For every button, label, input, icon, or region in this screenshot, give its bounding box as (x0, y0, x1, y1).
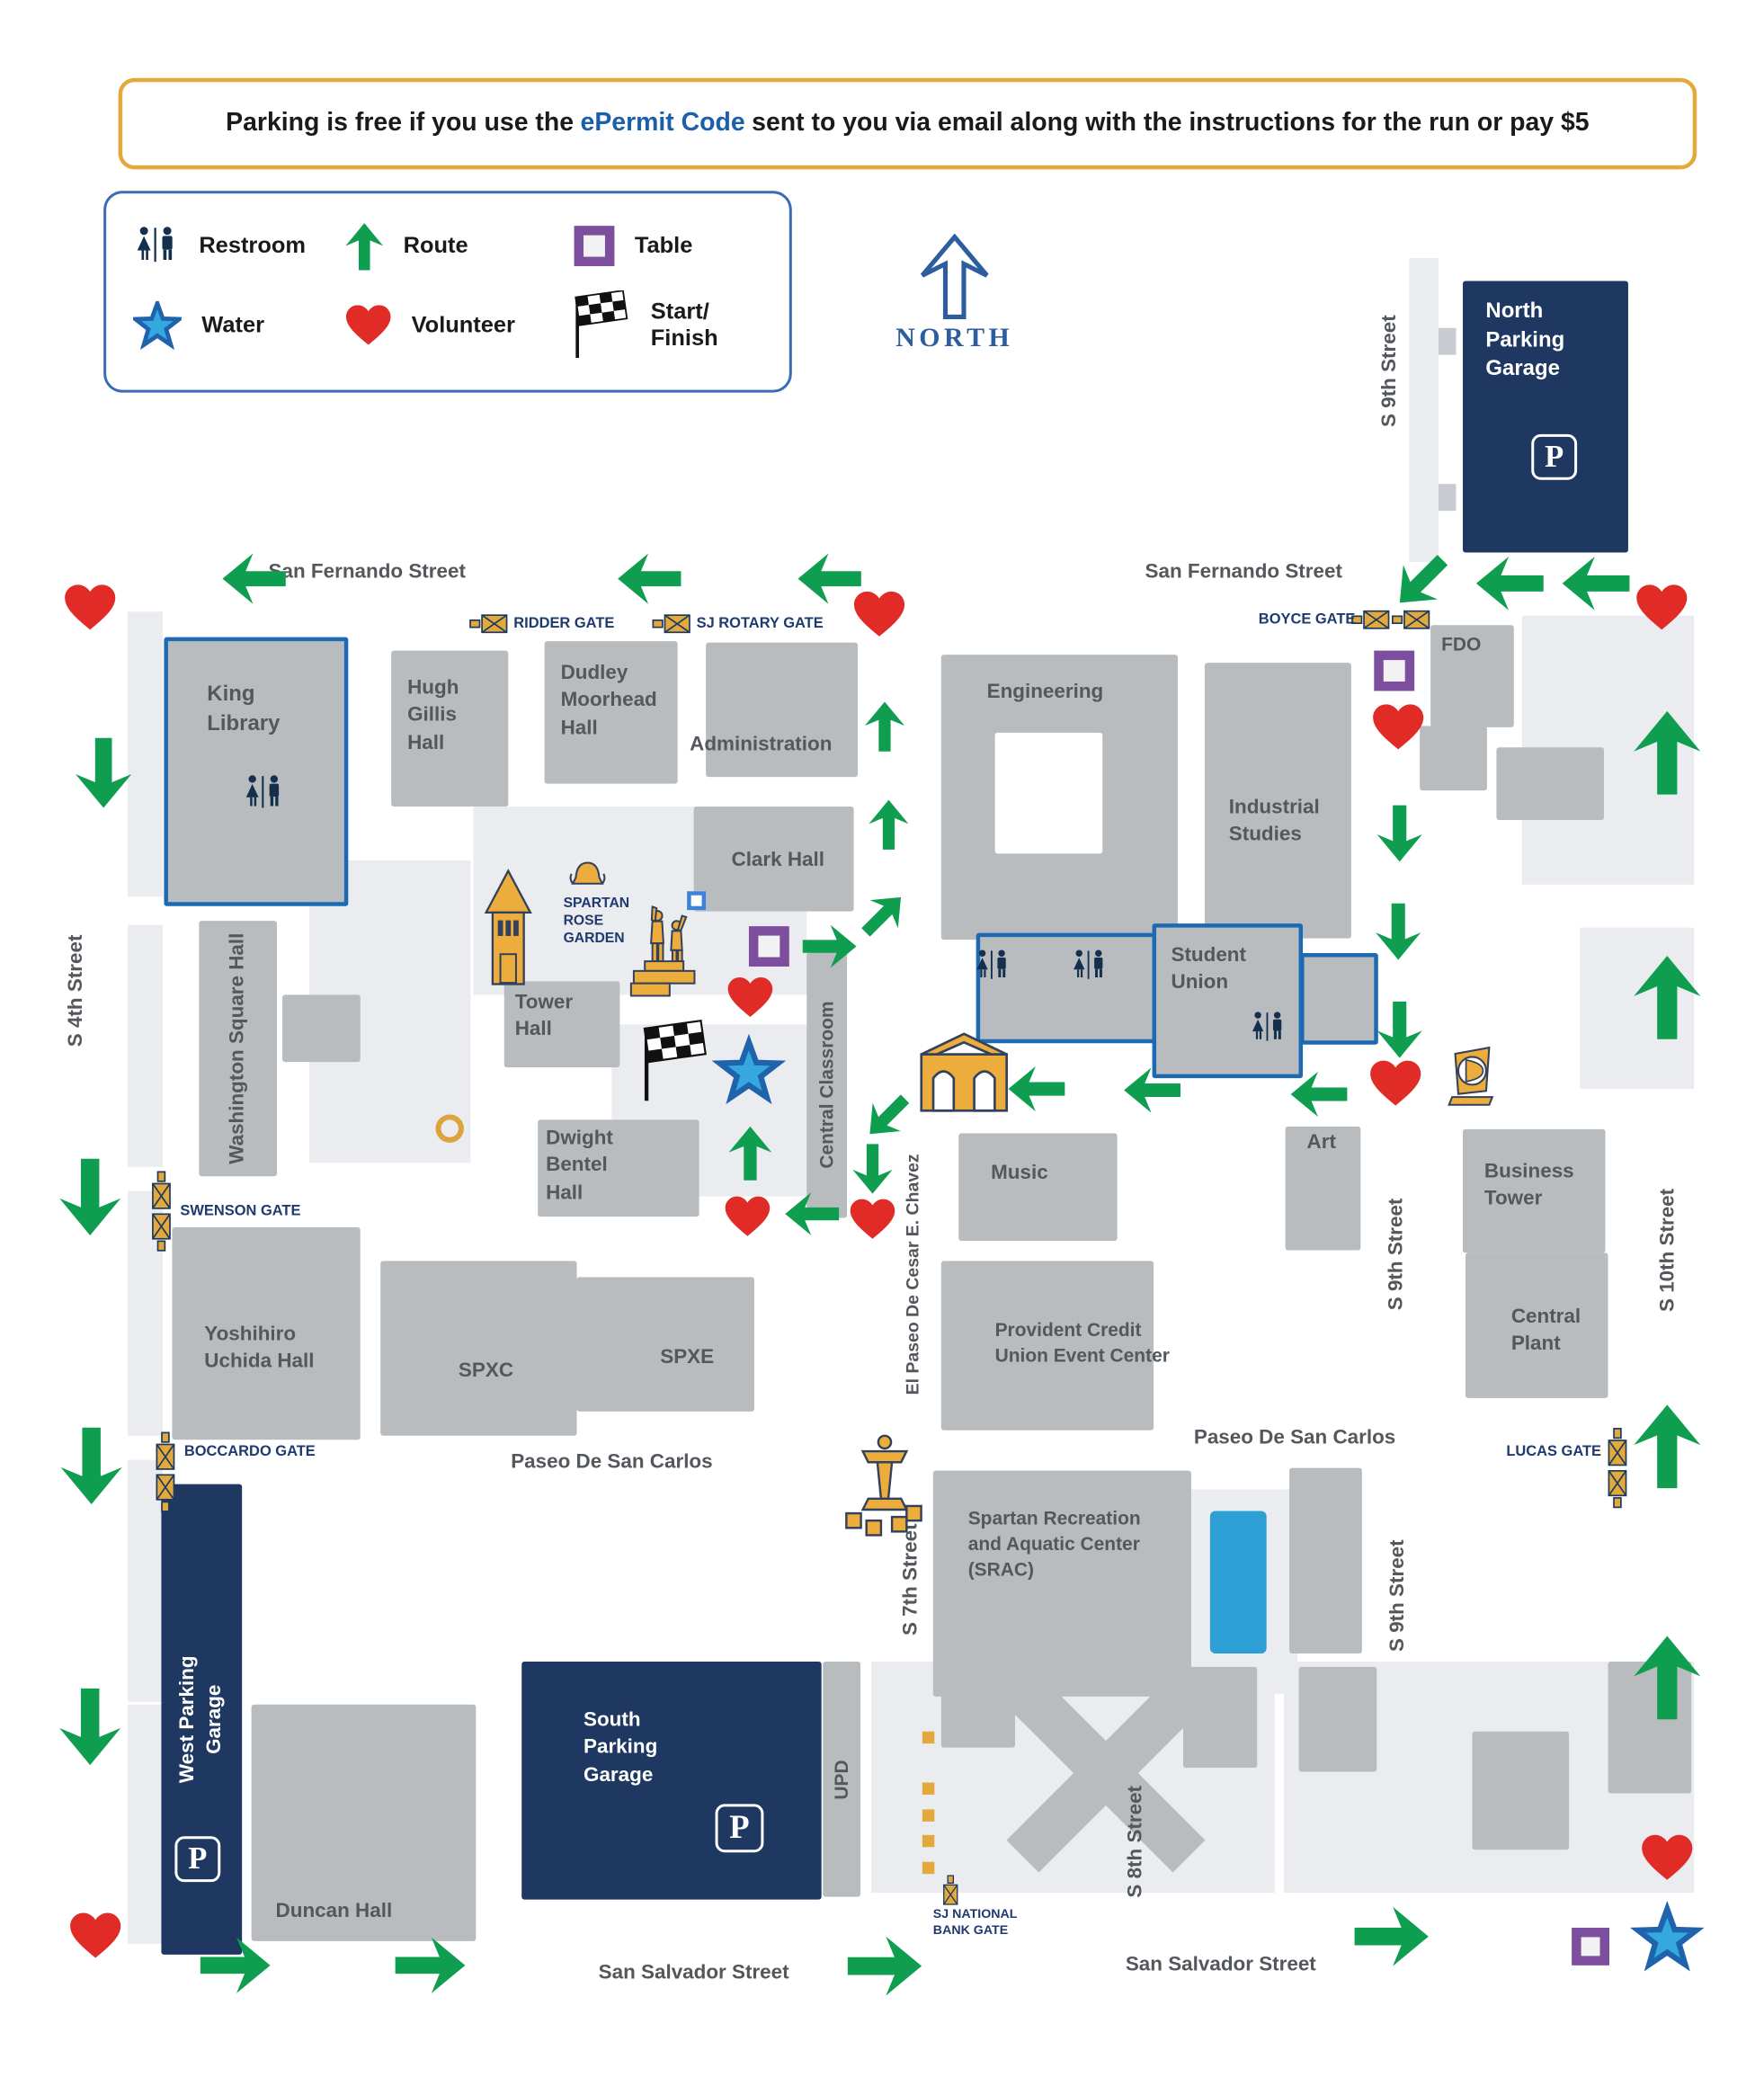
building-label-yoshihiro-uchida-hall: Yoshihiro Uchida Hall (204, 1322, 314, 1377)
swenson-gate-2-icon (152, 1211, 171, 1252)
building-west-annex (282, 994, 361, 1062)
building-label-art: Art (1307, 1129, 1336, 1156)
building-label-administration: Administration (690, 731, 832, 758)
street-paseo-san-carlos-east: Paseo De San Carlos (1194, 1425, 1395, 1452)
building-bottom-right-building-2 (1472, 1732, 1569, 1850)
map-block (128, 925, 163, 1167)
street-s-9th-south: S 9th Street (1385, 1539, 1412, 1652)
table-square-icon (1374, 651, 1414, 691)
route-arrow-icon (200, 1937, 271, 1993)
building-spxc (380, 1261, 576, 1435)
route-arrow-icon (851, 882, 915, 946)
street-el-paseo: El Paseo De Cesar E. Chavez (901, 1154, 924, 1395)
rose-garden-bell-icon (566, 859, 610, 888)
parking-p-icon: P (716, 1804, 764, 1852)
building-srac (933, 1471, 1191, 1697)
volunteer-heart-icon (1642, 1835, 1693, 1881)
route-arrow-icon (1009, 1066, 1065, 1112)
route-arrow-icon (1376, 806, 1422, 862)
building-label-central-classroom: Central Classroom (815, 1001, 840, 1168)
banner-text-prefix: Parking is free if you use the (226, 109, 574, 138)
building-label-south-parking-garage: South Parking Garage (584, 1707, 657, 1789)
map-block (128, 611, 163, 896)
street-s-7th: S 7th Street (898, 1523, 925, 1636)
legend-label: Table (635, 233, 693, 260)
route-arrow-icon (852, 1144, 893, 1193)
route-arrow-icon (1291, 1072, 1348, 1118)
route-arrow-icon (856, 1084, 920, 1148)
route-arrow-icon (1634, 1404, 1701, 1488)
restroom-icon (1070, 949, 1108, 982)
street-san-fernando-east: San Fernando Street (1145, 559, 1342, 586)
legend-label: Volunteer (412, 312, 515, 339)
ridder-gate-icon (469, 614, 510, 633)
restroom-icon (133, 227, 179, 267)
route-arrow-icon (1124, 1067, 1180, 1113)
route-arrow-icon (848, 1936, 922, 1995)
parking-banner: Parking is free if you use the ePermit C… (119, 78, 1697, 170)
street-san-salvador-west: San Salvador Street (599, 1960, 789, 1987)
route-arrow-icon (1634, 956, 1701, 1039)
building-engineering-courtyard (995, 733, 1103, 854)
fountain-landmark-icon (844, 1433, 925, 1536)
building-label-west-parking-garage: West Parking Garage (174, 1655, 229, 1783)
building-label-student-union: Student Union (1171, 942, 1245, 997)
building-label-spxe: SPXE (660, 1344, 714, 1371)
route-arrow-icon (1383, 542, 1460, 620)
legend-item-route: Route (345, 212, 574, 281)
street-s-8th: S 8th Street (1122, 1786, 1149, 1898)
lucas-gate-icon (1608, 1428, 1626, 1468)
map-block (922, 1783, 934, 1795)
building-label-hugh-gillis-hall: Hugh Gillis Hall (407, 675, 459, 757)
water-star-icon (133, 301, 182, 350)
parking-p-icon: P (174, 1836, 220, 1882)
route-arrow-icon (1634, 1636, 1701, 1720)
legend-item-start-finish: Start/ Finish (575, 281, 776, 371)
map-block (922, 1809, 934, 1821)
legend-label: Restroom (199, 233, 306, 260)
map-block (1439, 328, 1456, 355)
volunteer-heart-icon (1370, 1061, 1421, 1107)
campus-map: Parking is free if you use the ePermit C… (0, 0, 1764, 2077)
restroom-icon (1249, 1011, 1287, 1044)
building-king-library (164, 637, 348, 906)
sj-national-bank-gate-icon (943, 1874, 958, 1906)
route-arrow-icon (76, 738, 132, 808)
street-san-salvador-east: San Salvador Street (1126, 1952, 1316, 1979)
volunteer-heart-icon (1373, 704, 1424, 750)
lucas-gate-label: LUCAS GATE (1506, 1442, 1601, 1461)
building-label-business-tower: Business Tower (1484, 1159, 1574, 1214)
building-fdo-south-building (1420, 726, 1487, 790)
building-label-engineering: Engineering (987, 679, 1104, 706)
route-arrow-icon (396, 1937, 466, 1993)
sj-rotary-gate-label: SJ ROTARY GATE (697, 614, 824, 633)
parking-p-icon: P (1531, 434, 1577, 480)
route-arrow-icon (729, 1127, 772, 1181)
ridder-gate-label: RIDDER GATE (513, 614, 614, 633)
building-label-provident-credit-union-event-center: Provident Credit Union Event Center (995, 1317, 1170, 1368)
route-arrow-icon (785, 1192, 839, 1235)
building-srac-east-building (1289, 1468, 1362, 1654)
volunteer-heart-icon (850, 1199, 895, 1240)
building-label-washington-square-hall: Washington Square Hall (225, 933, 252, 1164)
route-arrow-icon (60, 1427, 122, 1503)
route-arrow-icon (1476, 557, 1544, 611)
start-finish-flag-icon (575, 290, 631, 361)
spartan-rose-garden: SPARTAN ROSE GARDEN (564, 896, 630, 948)
route-arrow-icon (798, 552, 861, 603)
building-label-dwight-bentel-hall: Dwight Bentel Hall (546, 1125, 613, 1207)
building-label-dudley-moorhead-hall: Dudley Moorhead Hall (561, 660, 657, 742)
map-block (1210, 1511, 1267, 1653)
map-block (128, 1705, 163, 1944)
building-student-union-east (1300, 953, 1378, 1045)
legend-label: Route (404, 233, 468, 260)
start-finish-flag-icon (643, 1021, 710, 1104)
lucas-gate-2-icon (1608, 1468, 1626, 1509)
building-label-industrial-studies: Industrial Studies (1229, 795, 1320, 850)
volunteer-heart-icon (725, 1197, 771, 1237)
arch-monument-icon (914, 1027, 1014, 1116)
street-s-4th: S 4th Street (63, 935, 90, 1047)
route-arrow-icon (618, 552, 681, 603)
route-arrow-icon (865, 701, 905, 751)
table-square-icon (575, 227, 615, 267)
map-block (1439, 484, 1456, 511)
north-compass-icon (918, 234, 991, 320)
boccardo-gate-label: BOCCARDO GATE (184, 1442, 316, 1461)
tower-hall-landmark-icon (475, 863, 542, 987)
boccardo-gate-2-icon (156, 1472, 174, 1512)
street-san-fernando-west: San Fernando Street (269, 559, 466, 586)
volunteer-heart-icon (345, 306, 391, 346)
volunteer-heart-icon (65, 584, 116, 630)
sj-rotary-gate-icon (652, 614, 692, 633)
route-arrow-icon (345, 223, 383, 270)
route-arrow-icon (869, 799, 909, 849)
map-block (922, 1732, 934, 1743)
route-arrow-icon (1563, 557, 1630, 611)
volunteer-heart-icon (727, 977, 773, 1018)
building-bottom-right-building-1 (1299, 1667, 1377, 1772)
epermit-code-link[interactable]: ePermit Code (581, 109, 745, 138)
legend-item-restroom: Restroom (133, 212, 345, 281)
victory-salute-statue-icon (630, 905, 700, 1010)
swenson-gate-icon (152, 1171, 171, 1211)
street-paseo-san-carlos-west: Paseo De San Carlos (511, 1449, 712, 1476)
building-label-clark-hall: Clark Hall (731, 847, 824, 874)
building-label-fdo: FDO (1441, 632, 1481, 657)
legend-item-water: Water (133, 281, 345, 371)
restroom-icon (974, 949, 1011, 982)
boccardo-gate-icon (156, 1431, 174, 1472)
building-label-tower-hall: Tower Hall (515, 989, 573, 1044)
building-label-king-library: King Library (207, 681, 280, 739)
street-s-9th-mid: S 9th Street (1384, 1199, 1411, 1311)
swenson-gate-label: SWENSON GATE (180, 1201, 300, 1220)
map-block (1409, 258, 1439, 562)
building-ne-corner-building (1496, 747, 1604, 820)
route-arrow-icon (803, 925, 857, 968)
map-block (922, 1862, 934, 1874)
building-label-music: Music (991, 1160, 1048, 1187)
banner-text-suffix: sent to you via email along with the ins… (752, 109, 1589, 138)
legend-label: Start/ Finish (651, 299, 718, 352)
route-arrow-icon (1376, 1002, 1422, 1058)
sj-national-bank-gate-label: SJ NATIONAL BANK GATE (933, 1907, 1018, 1940)
restroom-icon (242, 774, 285, 812)
building-south-parking-garage (521, 1662, 821, 1900)
route-arrow-icon (59, 1688, 121, 1764)
legend-item-volunteer: Volunteer (345, 281, 574, 371)
street-s-9th-north: S 9th Street (1376, 315, 1403, 427)
building-label-srac: Spartan Recreation and Aquatic Center (S… (968, 1506, 1141, 1582)
building-label-central-plant: Central Plant (1511, 1304, 1581, 1359)
water-star-icon (1635, 1906, 1699, 1971)
water-star-icon (717, 1039, 781, 1104)
building-label-upd: UPD (829, 1760, 854, 1799)
legend-label: Water (201, 312, 264, 339)
route-arrow-icon (222, 552, 285, 603)
table-square-icon (749, 926, 789, 967)
table-square-icon (1572, 1928, 1609, 1966)
volunteer-heart-icon (70, 1913, 121, 1959)
route-arrow-icon (1634, 711, 1701, 795)
volunteer-heart-icon (854, 592, 905, 637)
building-bottom-mid-building-1 (941, 1667, 1015, 1748)
legend-item-table: Table (575, 212, 776, 281)
north-label: NORTH (895, 321, 1013, 357)
volunteer-heart-icon (1636, 584, 1688, 630)
street-s-10th: S 10th Street (1655, 1189, 1682, 1312)
map-legend: RestroomRouteTableWaterVolunteerStart/ F… (103, 191, 792, 392)
building-label-north-parking-garage: North Parking Garage (1485, 297, 1564, 384)
boyce-gate-icon (1351, 611, 1392, 629)
building-label-spxc: SPXC (459, 1358, 513, 1385)
map-block (922, 1835, 934, 1847)
route-arrow-icon (59, 1158, 121, 1235)
route-arrow-icon (1355, 1906, 1429, 1966)
building-label-duncan-hall: Duncan Hall (276, 1898, 393, 1925)
sculpture-landmark-icon (1446, 1045, 1500, 1107)
building-bottom-mid-building-2 (1183, 1667, 1257, 1768)
route-arrow-icon (1376, 904, 1421, 960)
boyce-gate-label: BOYCE GATE (1259, 611, 1356, 629)
ring-landmark-icon (435, 1114, 463, 1142)
